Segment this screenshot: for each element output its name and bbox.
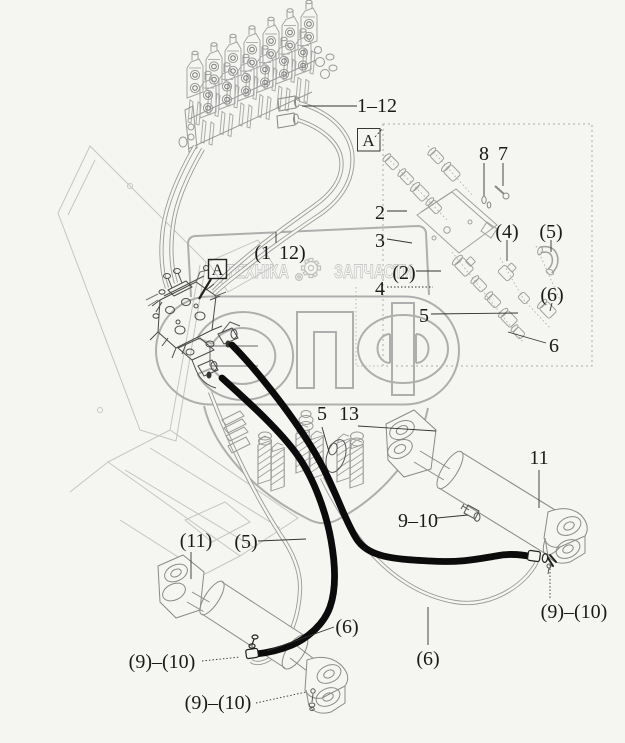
svg-text:9–10: 9–10 (398, 510, 438, 532)
svg-text:1–12: 1–12 (357, 95, 397, 117)
svg-text:(6): (6) (416, 648, 439, 670)
svg-text:11: 11 (529, 447, 548, 469)
svg-text:13: 13 (339, 403, 359, 425)
svg-text:7: 7 (498, 143, 508, 165)
svg-text:(11): (11) (180, 530, 213, 552)
svg-text:6: 6 (549, 335, 559, 357)
svg-text:5: 5 (419, 305, 429, 327)
svg-text:(6): (6) (540, 284, 563, 306)
svg-text:(5): (5) (234, 531, 257, 553)
svg-text:5: 5 (317, 403, 327, 425)
svg-text:4: 4 (375, 278, 385, 300)
svg-text:3: 3 (375, 230, 385, 252)
svg-text:8: 8 (479, 143, 489, 165)
svg-text:(9)–(10): (9)–(10) (129, 651, 196, 673)
svg-text:(9)–(10): (9)–(10) (185, 692, 252, 714)
svg-text:(4): (4) (495, 221, 518, 243)
svg-text:(1 12): (1 12) (254, 242, 305, 264)
svg-text:(6): (6) (335, 616, 358, 638)
svg-text:A: A (362, 131, 375, 150)
svg-text:(2): (2) (392, 262, 415, 284)
svg-text:(5): (5) (539, 221, 562, 243)
svg-text:2: 2 (375, 202, 385, 224)
svg-text:A: A (212, 262, 224, 279)
svg-text:(9)–(10): (9)–(10) (541, 601, 608, 623)
